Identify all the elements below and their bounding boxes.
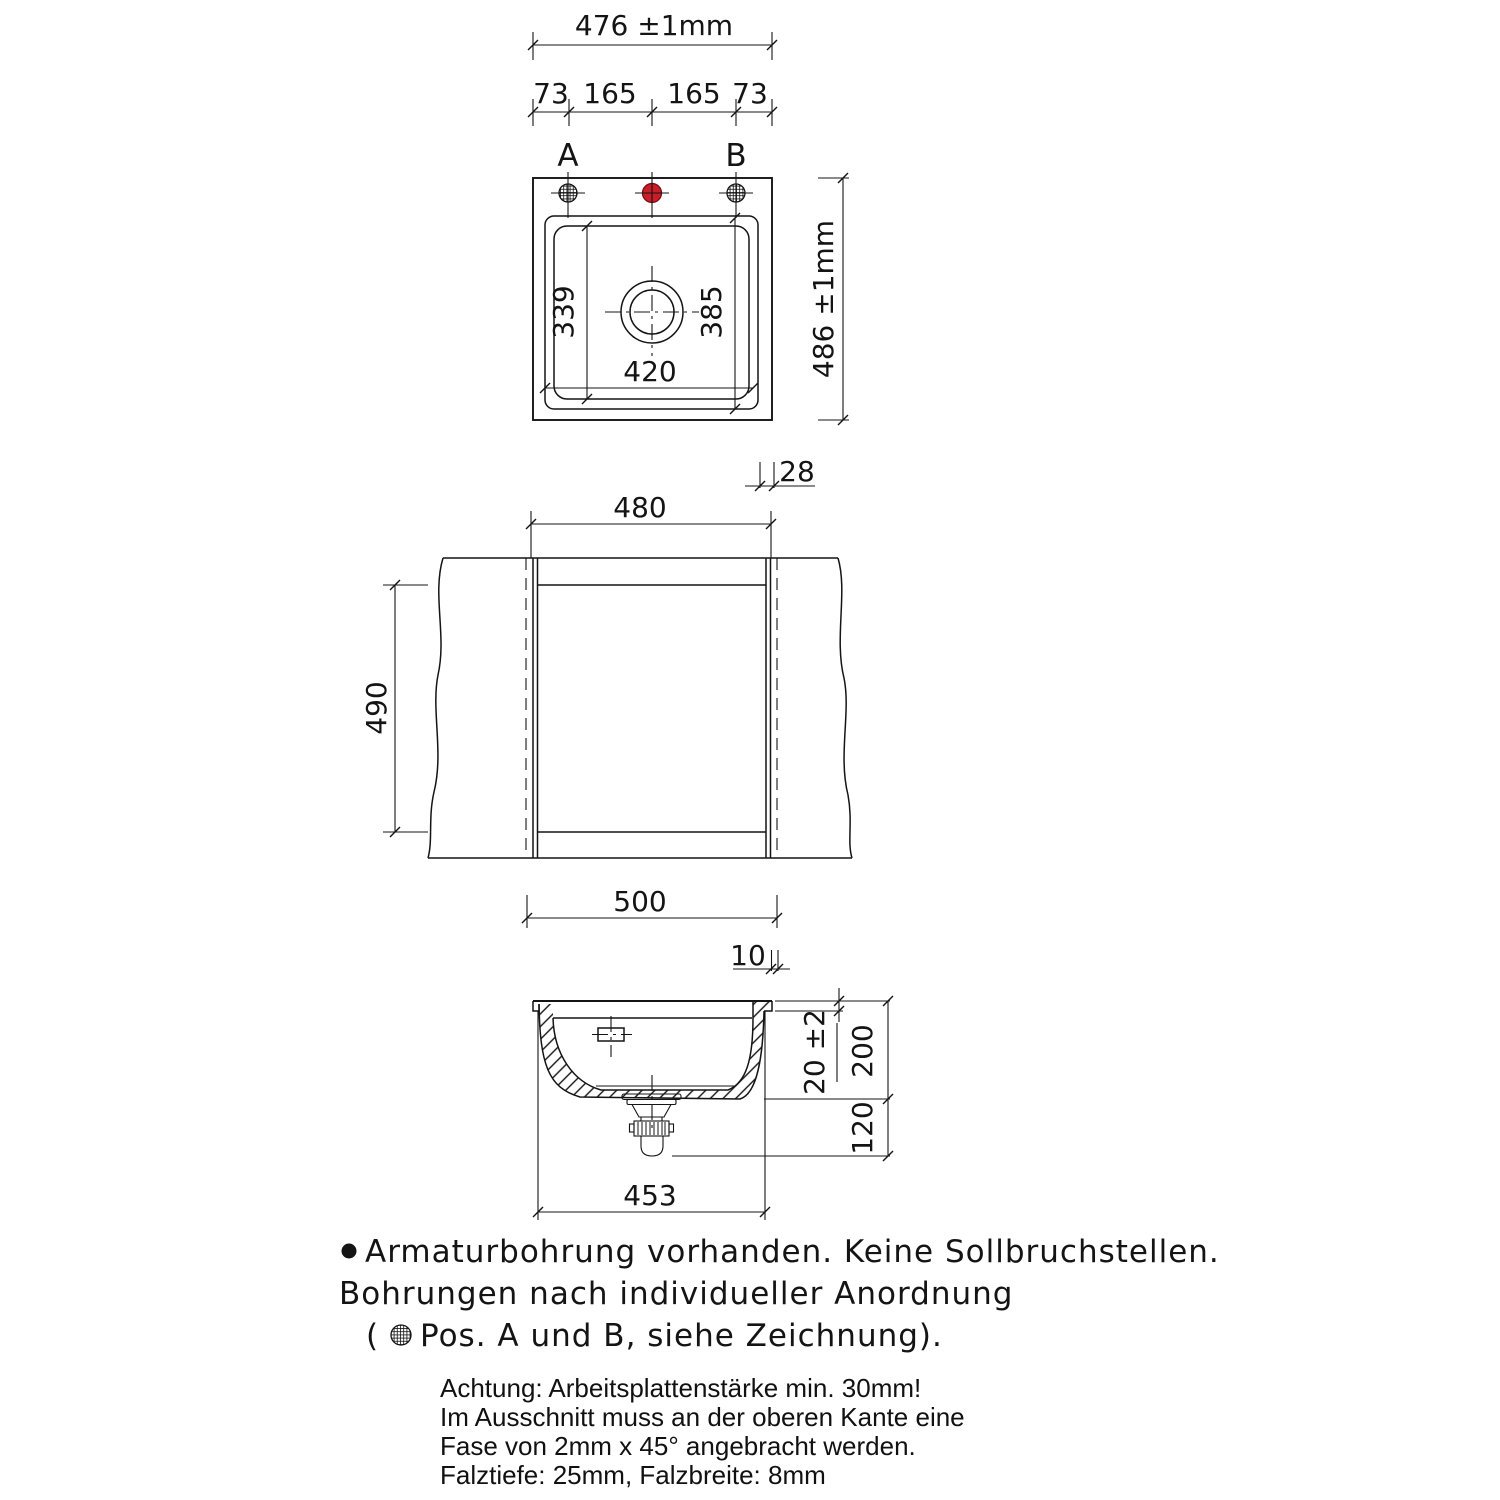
rim-lip-left (533, 1001, 539, 1011)
technical-drawing-sheet: 476 ±1mm 73 165 165 73 A B (0, 0, 1500, 1500)
offset-dim-3: 165 (667, 77, 720, 110)
hole-a-label: A (557, 138, 578, 174)
inner-depth-dim: 339 (547, 285, 580, 338)
edge-gap-dim: 10 (730, 939, 766, 972)
cutout-width-dim: 480 (613, 491, 666, 524)
drain-nut (634, 1121, 669, 1136)
cutout-view: 480 490 500 (360, 491, 852, 928)
break-line-right (838, 558, 852, 858)
section-view: 10 (533, 939, 893, 1220)
warning-line-1: Achtung: Arbeitsplattenstärke min. 30mm! (440, 1373, 921, 1403)
overall-depth-dim: 486 ±1mm (807, 220, 840, 378)
warning-note: Achtung: Arbeitsplattenstärke min. 30mm!… (440, 1373, 965, 1490)
sink-dimension-drawing: 476 ±1mm 73 165 165 73 A B (0, 0, 1500, 1500)
warning-line-3: Fase von 2mm x 45° angebracht werden. (440, 1431, 916, 1461)
hole-b-label: B (725, 138, 746, 174)
overall-width-dim: 476 ±1mm (575, 9, 733, 42)
outer-width-dim: 500 (613, 885, 666, 918)
note-line-1: Armaturbohrung vorhanden. Keine Sollbruc… (365, 1234, 1220, 1270)
bullet-icon (342, 1244, 357, 1259)
offset-dim-1: 73 (533, 77, 569, 110)
drain-assembly (622, 1075, 681, 1156)
break-line-left (428, 558, 443, 858)
cutout-depth-dim: 490 (360, 681, 393, 734)
note-line-3: Pos. A und B, siehe Zeichnung). (420, 1318, 943, 1354)
notes: Armaturbohrung vorhanden. Keine Sollbruc… (339, 1234, 1220, 1354)
warning-line-2: Im Ausschnitt muss an der oberen Kante e… (440, 1402, 965, 1432)
drain-height-dim: 120 (846, 1101, 879, 1154)
body-width-dim: 453 (623, 1179, 676, 1212)
rim-height-dim: 20 ±2 (798, 1009, 831, 1095)
bowl-width-dim: 420 (623, 355, 676, 388)
outer-depth-dim: 385 (695, 285, 728, 338)
warning-line-4: Falztiefe: 25mm, Falzbreite: 8mm (440, 1460, 826, 1490)
note-line-3-open: ( (366, 1318, 379, 1354)
drilled-hole-icon (391, 1325, 411, 1345)
offset-dim-2: 165 (583, 77, 636, 110)
top-view: 476 ±1mm 73 165 165 73 A B (528, 9, 849, 491)
bowl-depth-dim: 200 (846, 1024, 879, 1077)
note-line-2: Bohrungen nach individueller Anordnung (339, 1276, 1013, 1312)
offset-dim-4: 73 (732, 77, 768, 110)
bowl-inner-profile (553, 1018, 753, 1090)
edge-gap-dimension: 10 (730, 939, 790, 974)
rim-width-dimension: 28 (745, 455, 815, 491)
drain-cap (641, 1136, 663, 1156)
rim-width-dim: 28 (779, 455, 815, 488)
